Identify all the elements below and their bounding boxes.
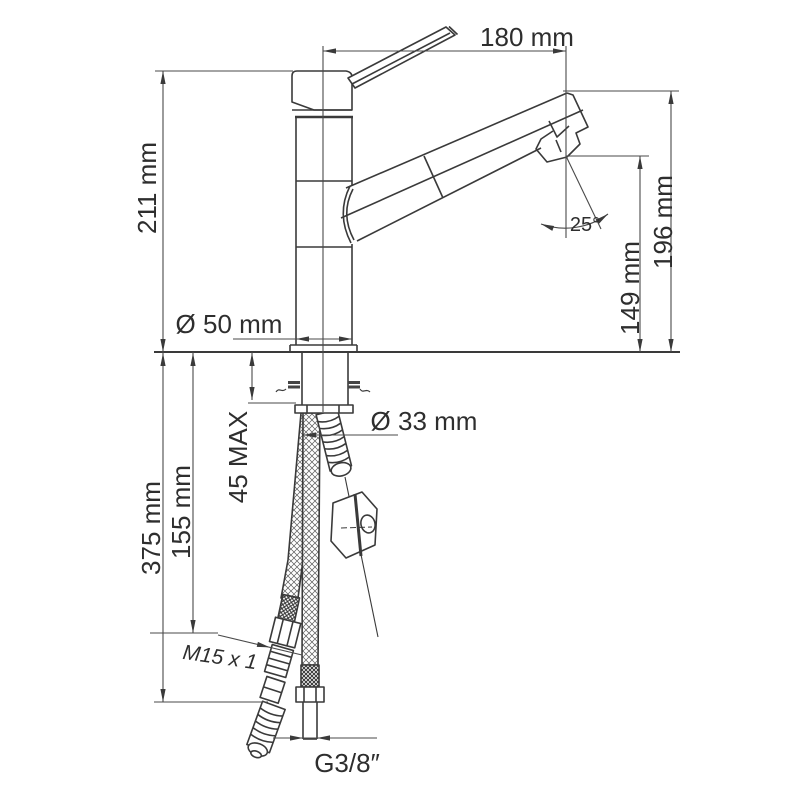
dim-thread-supply-label: G3/8″: [314, 748, 380, 778]
faucet-cap: [292, 71, 352, 110]
spout: [341, 93, 583, 243]
faucet-outline: [244, 27, 588, 762]
dim-hole-diameter-label: Ø 33 mm: [371, 406, 478, 436]
mounting-nut: [295, 405, 353, 413]
lever-handle: [348, 27, 458, 89]
dim-aerator-height-label: 149 mm: [615, 241, 645, 335]
drawing-canvas: 180 mm 211 mm 196 mm 149 mm 25° Ø 50 mm …: [0, 0, 800, 800]
dim-hose-length-long-label: 375 mm: [136, 481, 166, 575]
faucet-technical-drawing: 180 mm 211 mm 196 mm 149 mm 25° Ø 50 mm …: [0, 0, 800, 800]
dim-hose-length-short-label: 155 mm: [166, 465, 196, 559]
dim-body-height-label: 211 mm: [132, 142, 162, 234]
mounting-shank: [295, 353, 353, 413]
faucet-body: [295, 117, 353, 345]
dim-counter-thickness-label: 45 MAX: [223, 411, 253, 504]
aerator-nozzle: [536, 131, 567, 162]
dim-base-diameter-label: Ø 50 mm: [176, 309, 283, 339]
g38-hex-nut: [296, 687, 324, 702]
dimension-arrows: [160, 48, 673, 740]
dimension-lines: [150, 46, 680, 738]
pullout-hose-corrugated: [316, 409, 353, 478]
dim-thread-pullout-label: M15 x 1: [181, 641, 258, 674]
dim-spout-angle-label: 25°: [570, 214, 600, 236]
dim-spout-top-height-label: 196 mm: [648, 175, 678, 269]
m15-corrugated-tail: [244, 701, 285, 761]
dimension-labels: 180 mm 211 mm 196 mm 149 mm 25° Ø 50 mm …: [132, 22, 678, 778]
dim-spout-reach-label: 180 mm: [480, 22, 574, 52]
m15-hex-nut: [269, 617, 300, 648]
hose-ferrule: [301, 665, 319, 687]
hose-weight: [331, 477, 378, 637]
